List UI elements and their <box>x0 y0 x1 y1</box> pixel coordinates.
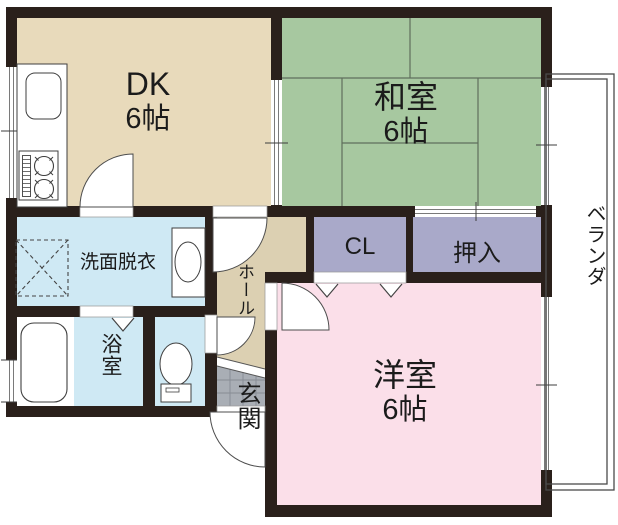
hall-label: ホール <box>232 263 257 317</box>
opening-yoshitsu <box>265 283 277 330</box>
toilet-tank <box>161 384 191 402</box>
toilet-handle <box>166 388 179 392</box>
opening-dk-senmen <box>80 206 133 217</box>
opening-cl <box>314 272 406 283</box>
oshiire-label: 押入 <box>413 233 541 268</box>
opening-toilet <box>205 315 217 353</box>
genkan-label: 玄関 <box>229 381 264 431</box>
opening-hall-dk <box>213 206 267 217</box>
washitsu-size: 6帖 <box>336 116 476 149</box>
yoshitsu-label: 洋室 6帖 <box>335 357 475 427</box>
dk-size: 6帖 <box>78 103 218 136</box>
washitsu-label: 和室 6帖 <box>336 79 476 149</box>
bath-label: 浴室 <box>95 333 125 377</box>
bathtub <box>21 323 67 402</box>
wash-basin-bowl <box>175 242 201 282</box>
yoshitsu-size: 6帖 <box>335 394 475 427</box>
washitsu-name: 和室 <box>336 79 476 116</box>
floorplan: DK 6帖 和室 6帖 洋室 6帖 洗面脱衣 CL 押入 ホール 浴室 玄関 ベ… <box>0 0 618 525</box>
veranda-label: ベランダ <box>580 203 609 287</box>
dk-label: DK 6帖 <box>78 66 218 136</box>
yoshitsu-name: 洋室 <box>335 357 475 394</box>
toilet-bowl <box>160 343 192 385</box>
stove-grill <box>23 156 31 197</box>
kitchen-sink <box>26 73 61 119</box>
senmen-label: 洗面脱衣 <box>68 247 168 274</box>
window-bath <box>6 360 17 402</box>
cl-label: CL <box>314 233 406 261</box>
window-dk <box>6 67 17 198</box>
dk-name: DK <box>78 66 218 103</box>
opening-bath <box>80 306 133 317</box>
